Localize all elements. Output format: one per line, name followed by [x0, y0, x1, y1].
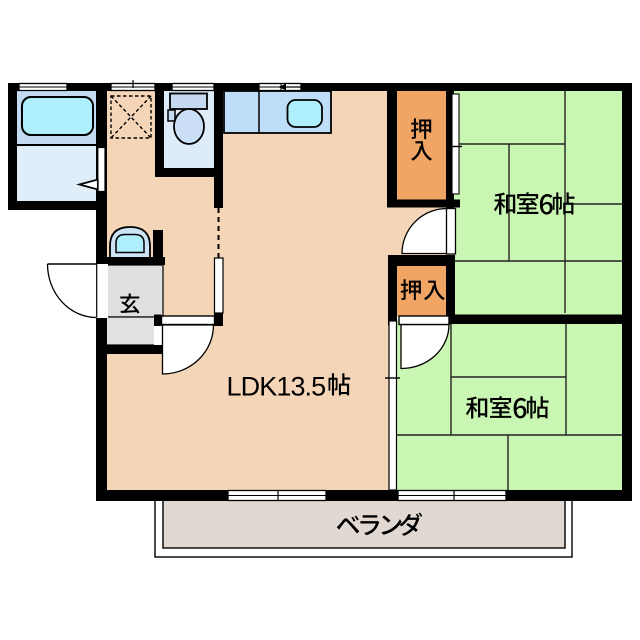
svg-text:LDK13.5: LDK13.5	[227, 372, 326, 402]
